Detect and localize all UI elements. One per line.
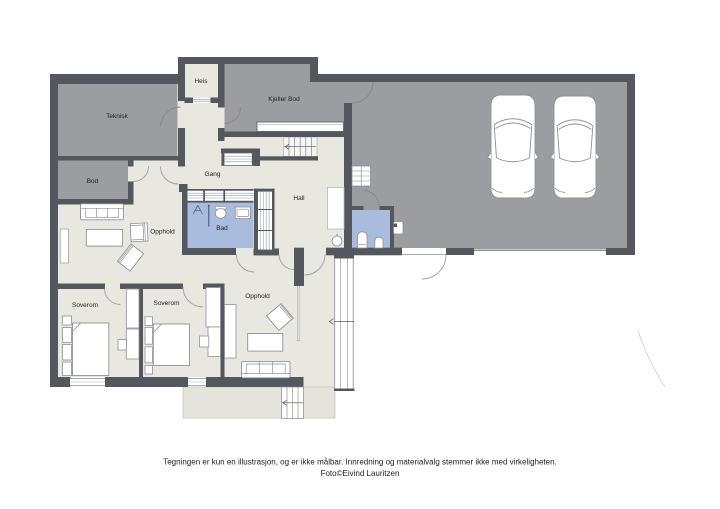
svg-text:Bod: Bod bbox=[87, 178, 99, 185]
svg-text:Heis: Heis bbox=[194, 78, 208, 85]
svg-text:Soverom: Soverom bbox=[153, 300, 179, 307]
svg-text:Soverom: Soverom bbox=[72, 302, 98, 309]
svg-text:Kjeller Bod: Kjeller Bod bbox=[268, 96, 300, 103]
svg-text:Gang: Gang bbox=[205, 171, 221, 178]
svg-text:Tegningen er kun en illustrasj: Tegningen er kun en illustrasjon, og er … bbox=[163, 458, 557, 467]
svg-text:Foto©Eivind Lauritzen: Foto©Eivind Lauritzen bbox=[321, 469, 400, 478]
svg-text:Teknisk: Teknisk bbox=[106, 113, 128, 120]
svg-text:Opphold: Opphold bbox=[245, 293, 270, 300]
svg-text:Hall: Hall bbox=[293, 195, 305, 202]
svg-text:Bad: Bad bbox=[216, 225, 228, 232]
svg-text:Opphold: Opphold bbox=[150, 229, 175, 236]
